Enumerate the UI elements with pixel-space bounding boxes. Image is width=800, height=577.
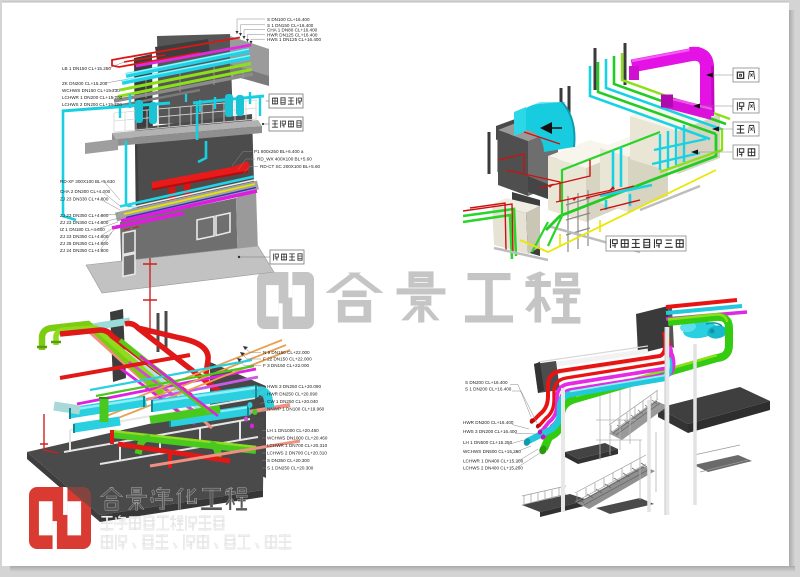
svg-text:S 1 DN250 CL+20.300: S 1 DN250 CL+20.300 (267, 466, 314, 471)
svg-text:CW 1 DN250 CL+20.040: CW 1 DN250 CL+20.040 (267, 399, 318, 404)
svg-text:N 9 DN150 CL+22.000: N 9 DN150 CL+22.000 (263, 350, 310, 355)
svg-text:S DN350 CL+20.300: S DN350 CL+20.300 (267, 458, 310, 463)
svg-text:ZJ 23 DN350 CL+4.800: ZJ 23 DN350 CL+4.800 (60, 220, 109, 225)
svg-text:HWR DN250 CL+20.090: HWR DN250 CL+20.090 (267, 392, 318, 397)
svg-text:HWS 1 DN125 CL+16.400: HWS 1 DN125 CL+16.400 (267, 37, 321, 42)
svg-text:S 1 DN200 CL+16.400: S 1 DN200 CL+16.400 (465, 387, 512, 392)
svg-text:WCHWS DN1000 CL+20.460: WCHWS DN1000 CL+20.460 (267, 436, 328, 441)
svg-text:F 3 DN150 CL+22.000: F 3 DN150 CL+22.000 (263, 363, 310, 368)
svg-text:S DN100 CL+16.400: S DN100 CL+16.400 (267, 17, 310, 22)
svg-text:LH 1 DN500 CL+15.250: LH 1 DN500 CL+15.250 (463, 440, 513, 445)
svg-text:IZ 1 DN180 CL+4.600: IZ 1 DN180 CL+4.600 (60, 227, 105, 232)
svg-text:ZJ 23 DN350 CL+4.800: ZJ 23 DN350 CL+4.800 (60, 234, 109, 239)
svg-text:LCHWS 2 DN700 CL+20.310: LCHWS 2 DN700 CL+20.310 (267, 451, 327, 456)
svg-text:F 22 DN150 CL+22.000: F 22 DN150 CL+22.000 (263, 357, 312, 362)
svg-text:CHA 1 DN80 CL+16.400: CHA 1 DN80 CL+16.400 (267, 28, 318, 33)
svg-text:S DN200 CL+16.400: S DN200 CL+16.400 (465, 380, 508, 385)
svg-text:LCHWS 2 DN400 CL+15.200: LCHWS 2 DN400 CL+15.200 (463, 466, 523, 471)
svg-text:RD-XF 300X100 BL+5.630: RD-XF 300X100 BL+5.630 (60, 179, 115, 184)
svg-text:RD_WX 400X100 BL+5.60: RD_WX 400X100 BL+5.60 (257, 157, 312, 162)
svg-text:HWS 3 DN250 CL+20.090: HWS 3 DN250 CL+20.090 (267, 384, 321, 389)
svg-text:S 1 DN150 CL+16.400: S 1 DN150 CL+16.400 (267, 23, 314, 28)
svg-text:HWR DN125 CL+16.400: HWR DN125 CL+16.400 (267, 32, 318, 37)
svg-text:RD-CT SC 200X100 BL+5.60: RD-CT SC 200X100 BL+5.60 (260, 164, 320, 169)
svg-text:LH 1 DN1000 CL+20.460: LH 1 DN1000 CL+20.460 (267, 428, 319, 433)
svg-text:CHA 2 DN300 CL+4.200: CHA 2 DN300 CL+4.200 (60, 189, 111, 194)
svg-text:ZJ 23 DN330 CL+4.800: ZJ 23 DN330 CL+4.800 (60, 197, 109, 202)
svg-text:ZK DN200 CL+15.200: ZK DN200 CL+15.200 (62, 81, 108, 86)
svg-text:P1 800x250 BL+6.400 a: P1 800x250 BL+6.400 a (254, 149, 304, 154)
svg-text:LCHWR 1 DN700 CL+20.310: LCHWR 1 DN700 CL+20.310 (267, 443, 328, 448)
svg-text:HWS 3 DN200 CL+16.400: HWS 3 DN200 CL+16.400 (463, 429, 517, 434)
svg-text:NNWP 1 DN100 CL+19.960: NNWP 1 DN100 CL+19.960 (267, 407, 325, 412)
svg-text:HWR DN200 CL+16.400: HWR DN200 CL+16.400 (463, 420, 514, 425)
svg-text:LCHWR 1 DN400 CL+15.200: LCHWR 1 DN400 CL+15.200 (463, 459, 524, 464)
svg-text:ZJ 24 DN350 CL+4.800: ZJ 24 DN350 CL+4.800 (60, 248, 109, 253)
svg-text:LCHWR 1 DN200 CL+15.200: LCHWR 1 DN200 CL+15.200 (62, 95, 123, 100)
svg-text:LB 1 DN150 CL+15.250: LB 1 DN150 CL+15.250 (62, 66, 111, 71)
